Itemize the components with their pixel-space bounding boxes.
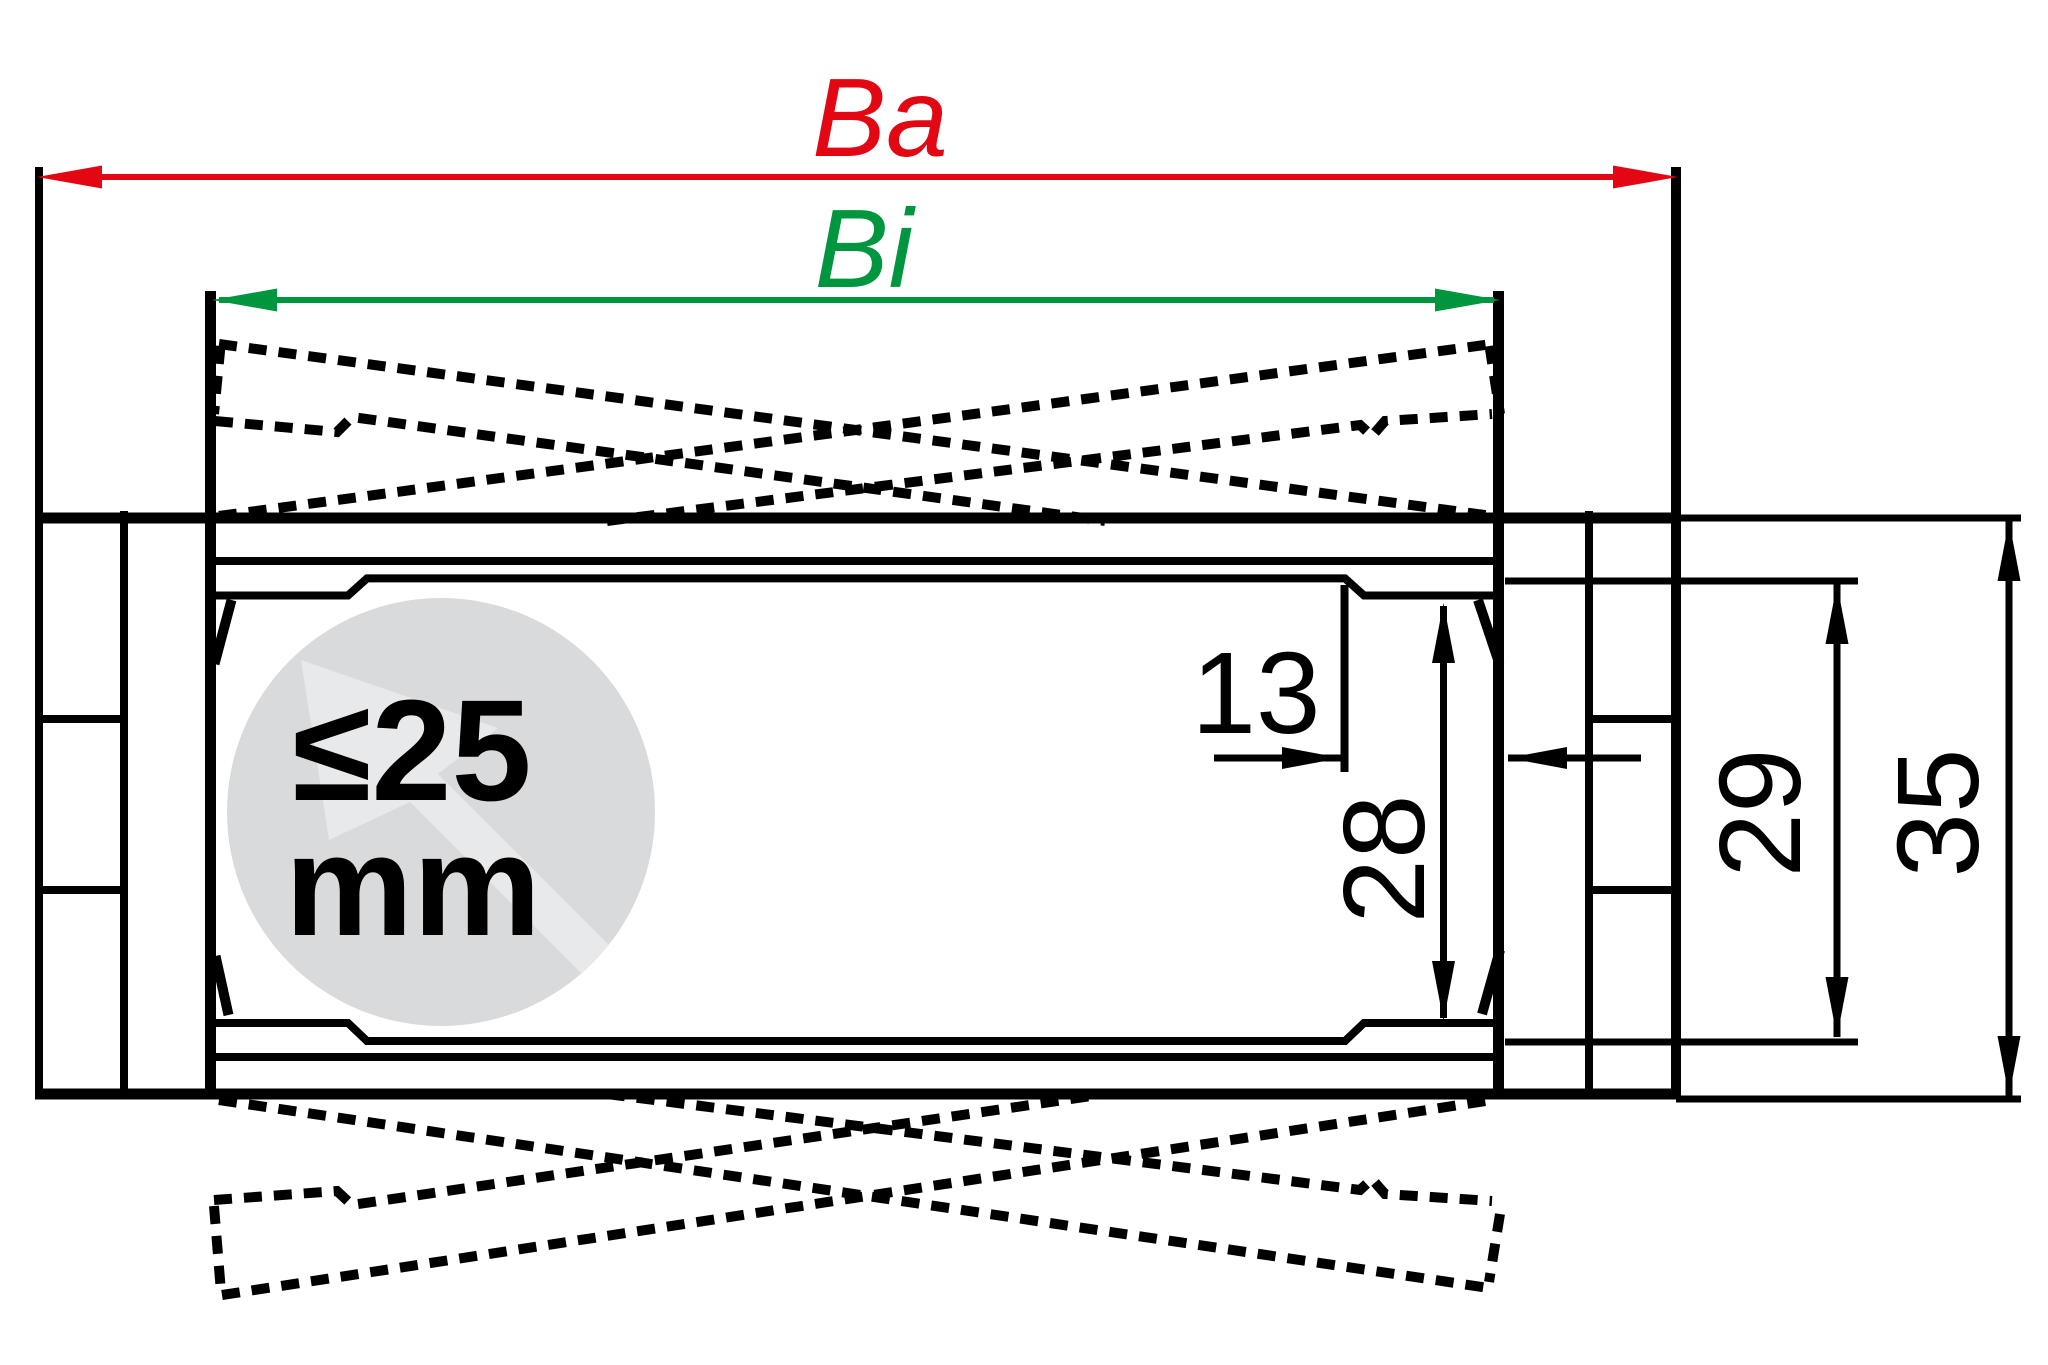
svg-text:mm: mm: [285, 805, 541, 966]
svg-text:13: 13: [1191, 628, 1320, 758]
svg-text:28: 28: [1319, 794, 1449, 923]
svg-text:Bi: Bi: [815, 187, 917, 311]
svg-text:29: 29: [1695, 748, 1825, 877]
svg-text:Ba: Ba: [812, 56, 948, 180]
svg-text:35: 35: [1873, 748, 2003, 877]
